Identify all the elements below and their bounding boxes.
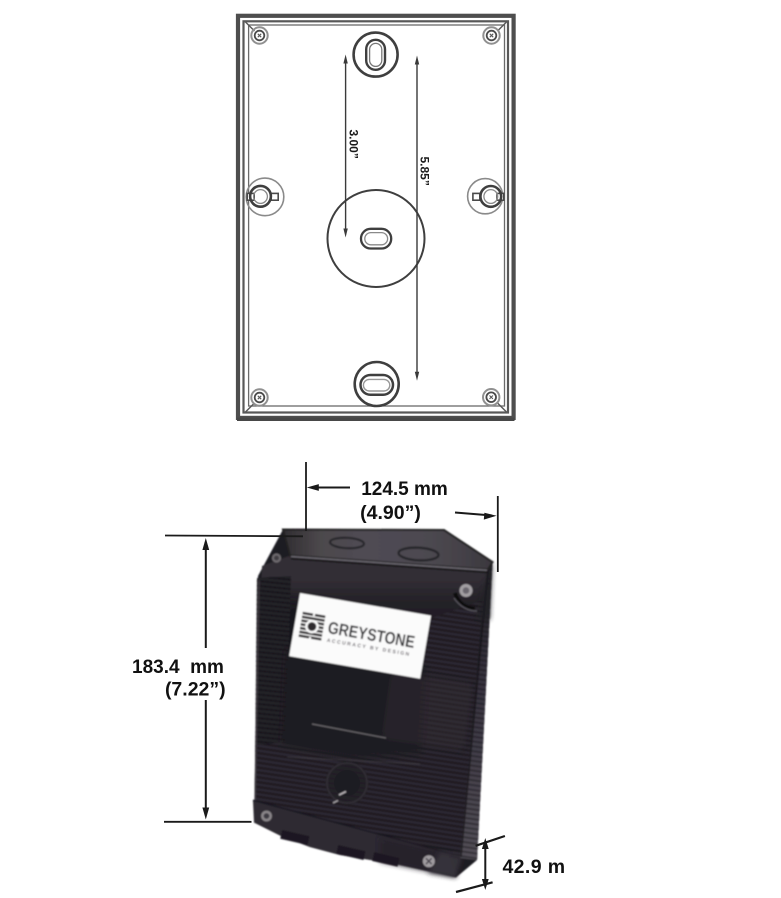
- svg-text:(4.90”): (4.90”): [360, 502, 421, 524]
- svg-text:183.4 mm: 183.4 mm: [132, 657, 224, 678]
- svg-text:3.00”: 3.00”: [347, 130, 361, 159]
- svg-text:42.9 m: 42.9 m: [502, 856, 565, 878]
- svg-text:124.5 mm: 124.5 mm: [361, 479, 448, 500]
- svg-text:(7.22”): (7.22”): [165, 679, 226, 701]
- svg-text:5.85”: 5.85”: [418, 157, 432, 186]
